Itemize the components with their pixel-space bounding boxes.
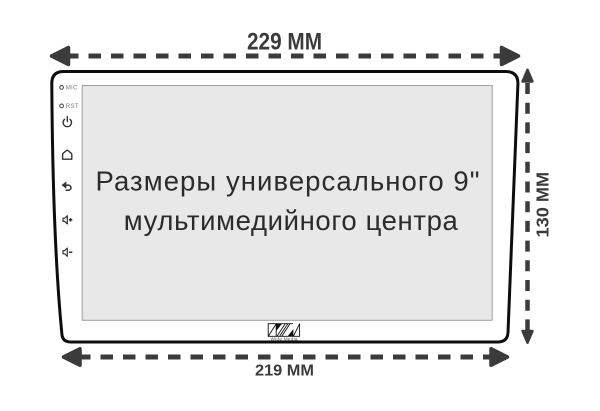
svg-text:Размеры универсального 9": Размеры универсального 9" [96,166,480,197]
svg-text:130 MM: 130 MM [532,172,552,238]
svg-text:229 MM: 229 MM [247,29,322,56]
svg-text:219 MM: 219 MM [255,362,314,380]
svg-text:RST: RST [66,104,79,110]
svg-text:MIC: MIC [66,86,78,92]
svg-text:Wide Media: Wide Media [271,337,298,342]
svg-text:мультимедийного центра: мультимедийного центра [124,205,459,236]
